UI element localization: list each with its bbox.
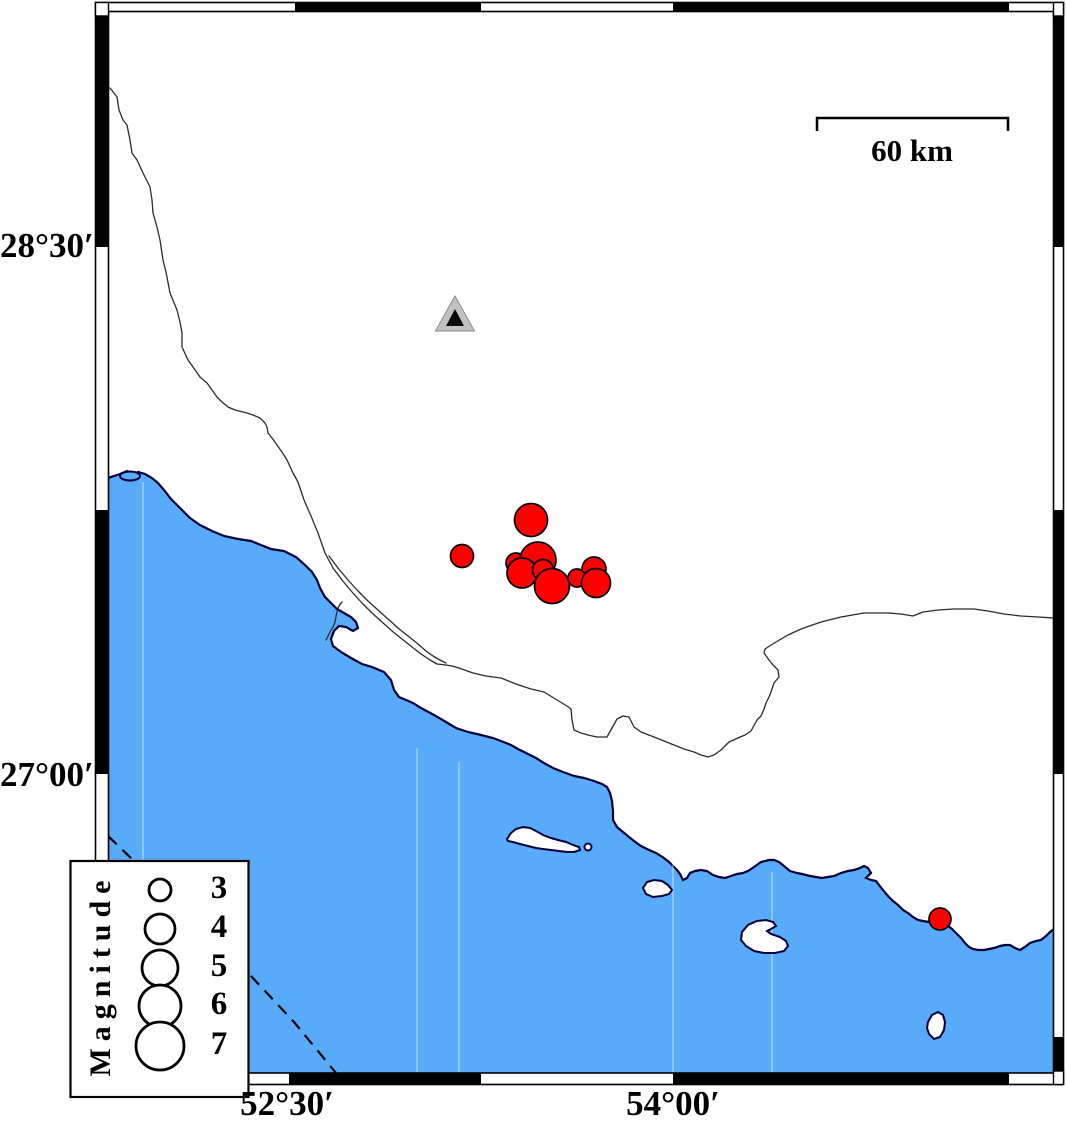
legend-size-circle: [142, 950, 178, 986]
legend-value-7: 7: [196, 1026, 242, 1063]
epicenter-marker: [515, 504, 548, 537]
legend-value-5: 5: [196, 948, 242, 985]
legend-size-circle: [145, 914, 175, 944]
legend-size-circle: [136, 1022, 184, 1070]
epicenter-marker: [929, 908, 951, 930]
coastal-lagoon: [120, 472, 140, 481]
lon-label-54-00: 54°00′: [573, 1084, 773, 1124]
epicenter-marker: [451, 545, 474, 568]
legend-value-6: 6: [196, 986, 242, 1023]
seismicity-map-page: { "map": { "type": "earthquake-epicenter…: [0, 0, 1066, 1121]
legend-value-4: 4: [196, 909, 242, 946]
station-triangle-marker: [436, 296, 475, 331]
sea-area: [108, 471, 1054, 1074]
legend-value-3: 3: [196, 870, 242, 907]
lon-label-52-30: 52°30′: [187, 1084, 387, 1124]
lat-label-28-30: 28°30′: [0, 226, 90, 266]
islet-small: [585, 844, 592, 851]
border-line-parallel: [329, 556, 446, 663]
lat-label-27-00: 27°00′: [0, 755, 88, 795]
scale-bar-label: 60 km: [812, 133, 1012, 169]
frame-corner-top-left: [96, 3, 109, 17]
legend-size-circle: [149, 879, 171, 901]
epicenter-marker: [582, 569, 611, 598]
epicenter-marker: [535, 569, 570, 604]
frame-corner-bottom-right: [1054, 1071, 1064, 1085]
frame-corner-top-right: [1054, 3, 1064, 17]
legend-title-magnitude: Magnitude: [84, 862, 118, 1088]
scale-bar: [817, 118, 1008, 131]
